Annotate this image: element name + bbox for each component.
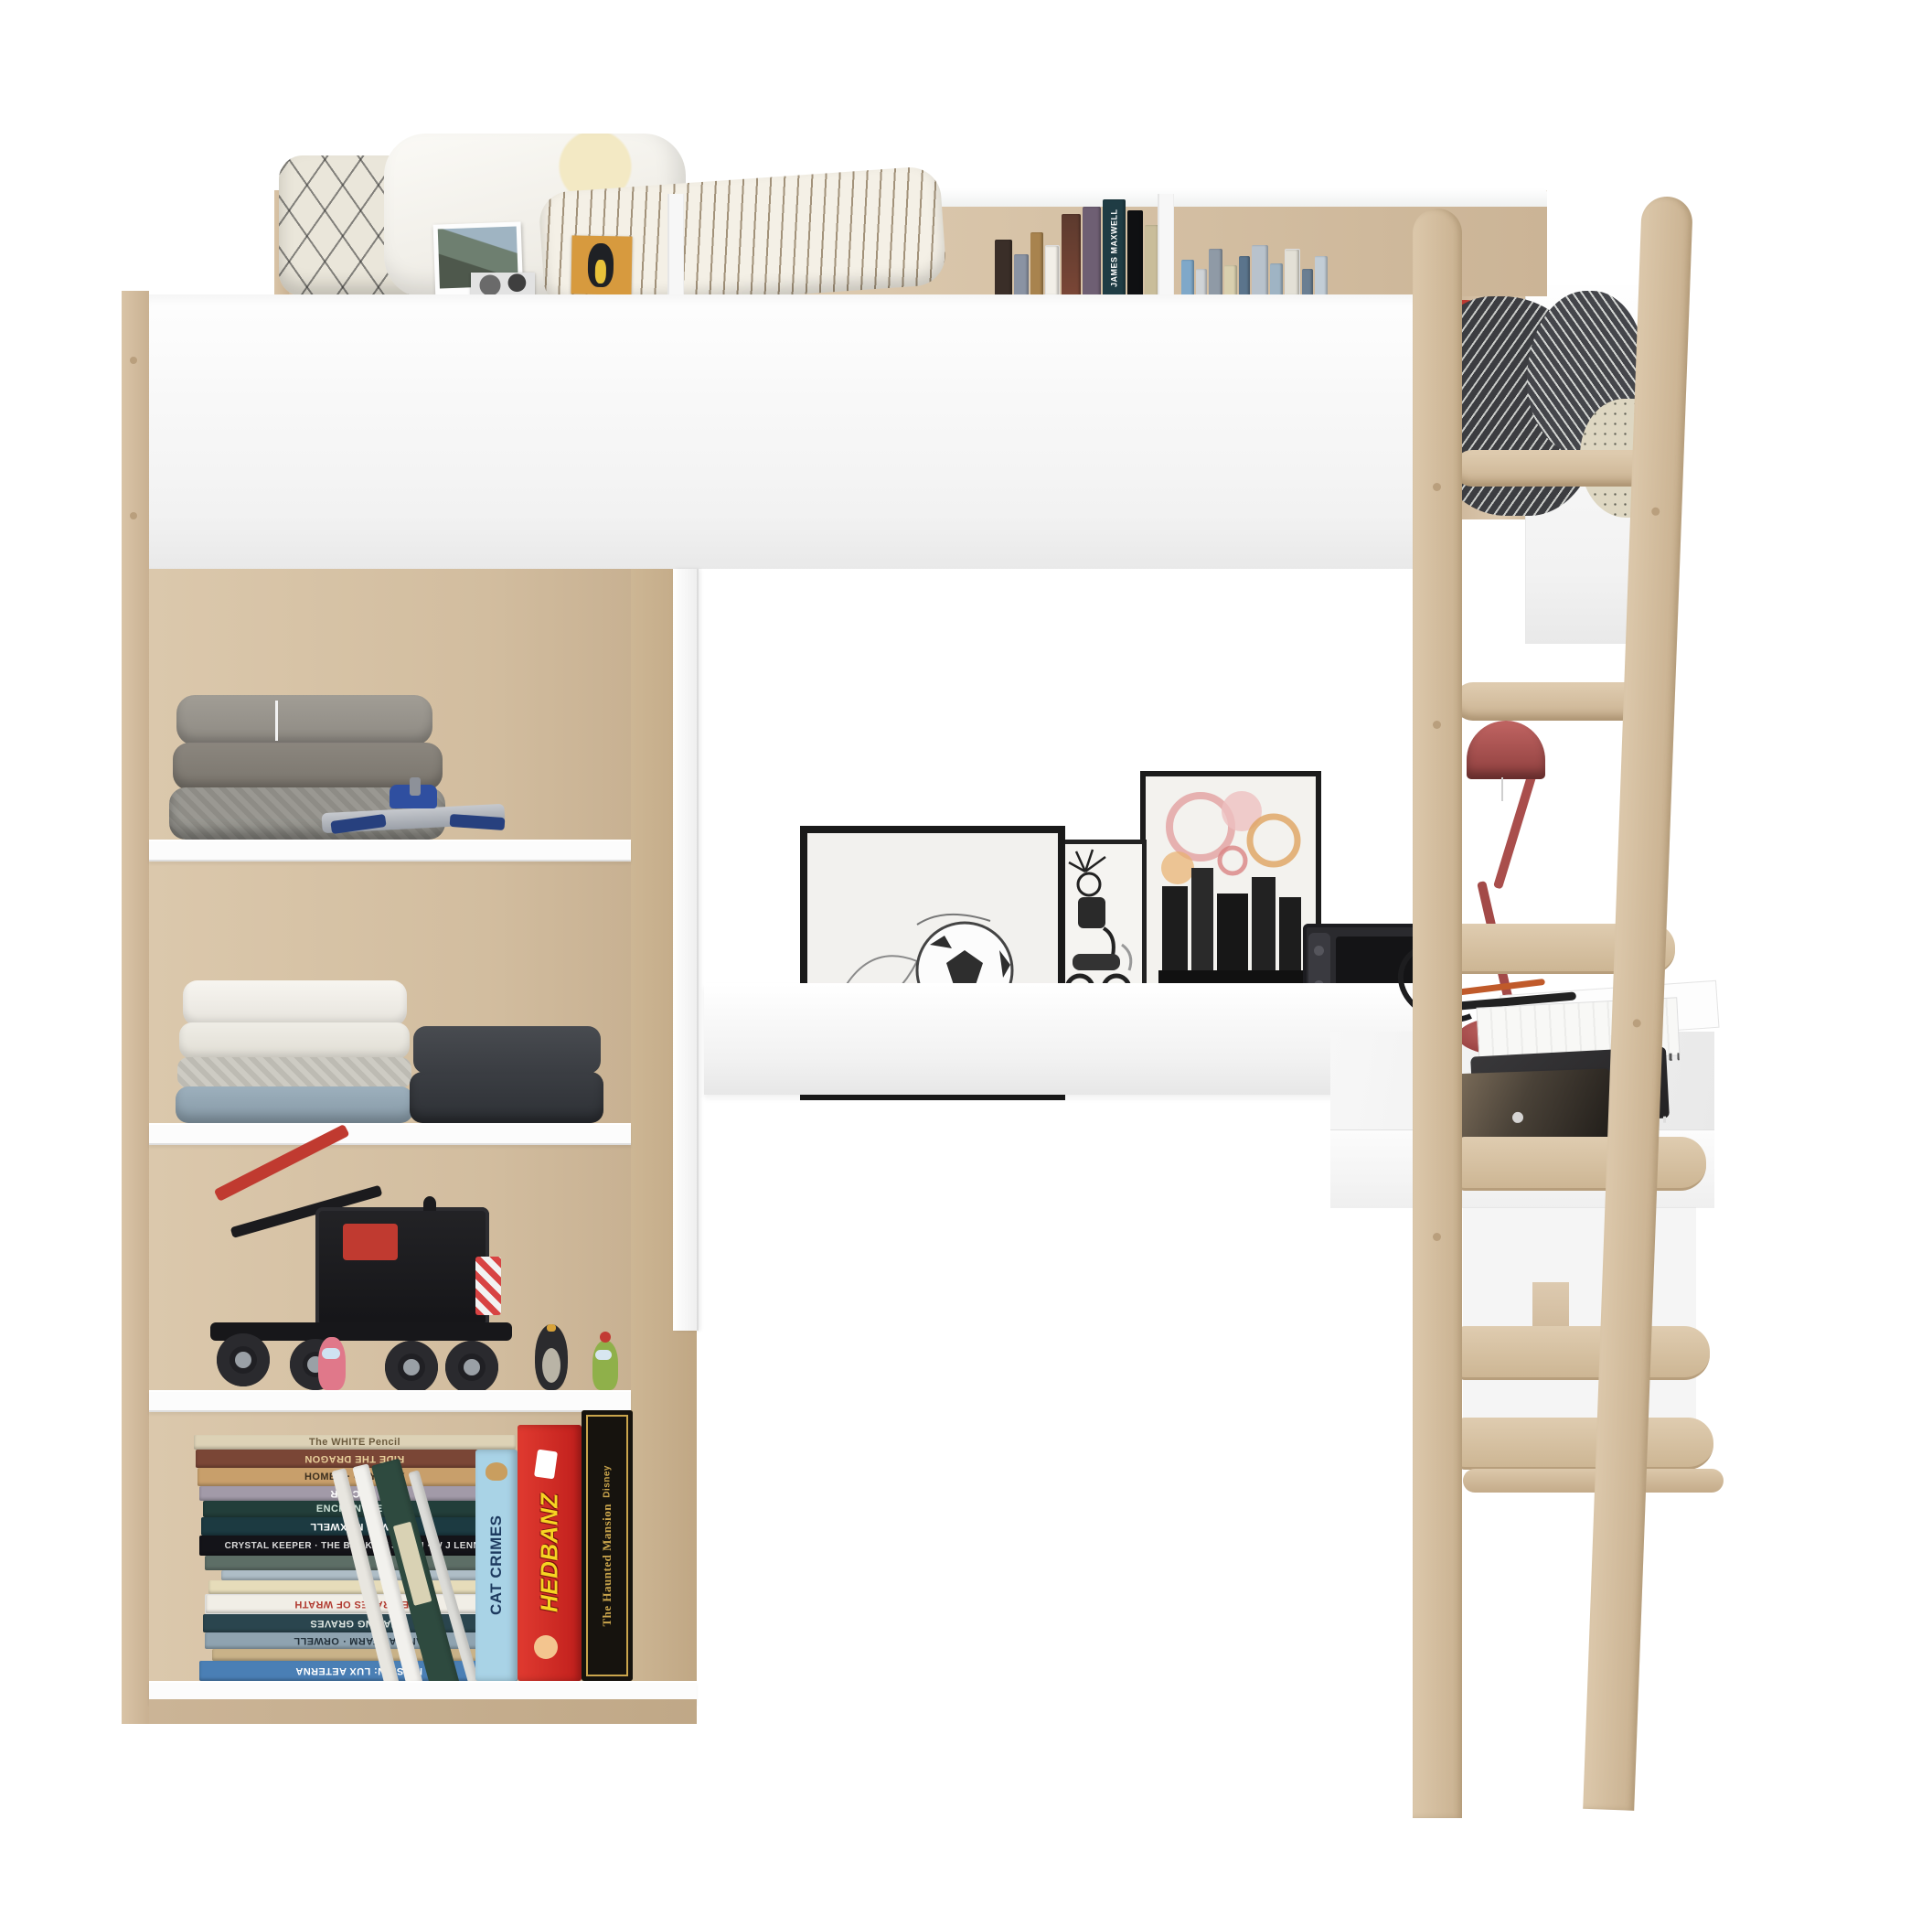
lamp-pull-chain [1501,777,1503,801]
book-spine [1196,269,1207,296]
desk-lamp-head [1467,721,1545,779]
book-spine [1062,214,1081,296]
stacked-book [208,1580,503,1594]
top-shelf-books-left: JAMES MAXWELL [995,196,1159,296]
ladder-dowel [1463,1469,1724,1493]
stacked-book: RIDE THE DRAGON [196,1450,514,1468]
pink-figurine [318,1337,346,1390]
ladder-tread [1457,1137,1706,1191]
stacked-book: The WHITE Pencil [194,1435,516,1450]
ladder-left-stile [1413,209,1462,1818]
lego-spaceship [322,777,514,840]
book-spine [1302,269,1313,296]
card-icon [534,1450,558,1480]
wardrobe-shelf [149,1390,631,1412]
folded-linens-dark [410,1026,606,1123]
book-spine [1239,256,1250,296]
haunted-mansion-brand: Disney [600,1465,614,1498]
wardrobe-base-shadow [149,1699,697,1724]
book-spine [1045,245,1061,296]
penguin-figurine [535,1324,568,1390]
bird-art-card [571,235,632,294]
ladder-tread [1457,1326,1710,1380]
cat-crimes-title: CAT CRIMES [475,1450,518,1681]
folded-linens-light [176,980,415,1123]
book-spine [1030,232,1043,296]
ladder-rung [1454,450,1657,487]
stacked-book: CHASING GRAVES [203,1614,514,1632]
wardrobe-shelf [149,840,631,862]
loft-bed-product-photo: JAMES MAXWELL [0,0,1932,1905]
haunted-mansion-title: The Haunted Mansion [600,1504,614,1626]
book-spine [1014,254,1029,296]
hedbanz-box: HEDBANZ [518,1425,582,1681]
top-shelf-books-right [1181,229,1328,296]
wardrobe-door-edge [673,569,699,1331]
face-icon [534,1635,558,1659]
cat-icon [486,1462,507,1481]
stacked-book: THE GRAPES OF WRATH [205,1594,512,1614]
ladder-tread [1457,1418,1713,1470]
book-spine-james-maxwell: JAMES MAXWELL [1103,199,1126,296]
desk-side-panel [1463,1207,1696,1437]
bed-front-panel [144,294,1457,569]
desk-lamp-arm-upper [1493,771,1537,889]
green-figurine [592,1341,618,1390]
wardrobe-shelf [149,1123,631,1145]
book-spine [1252,245,1268,296]
laptop-logo-icon [1512,1112,1523,1123]
wardrobe-left-side [122,291,149,1724]
headboard-divider [1158,194,1174,296]
headboard-divider [667,194,684,296]
book-spine [1270,263,1283,296]
book-spine [1209,249,1223,296]
book-spine [1285,249,1301,296]
desk-wood-stub [1532,1282,1569,1328]
book-title: JAMES MAXWELL [1103,199,1126,296]
book-spine [1083,207,1100,296]
book-spine [1127,210,1143,296]
desk-back-rail [704,983,1426,1095]
book-spine [1181,260,1194,296]
book-spine [1224,265,1237,296]
book-spine [995,240,1012,296]
haunted-mansion-box: Disney The Haunted Mansion [582,1410,633,1681]
cat-crimes-box: CAT CRIMES [475,1450,518,1681]
book-spine [1315,256,1328,296]
lego-truck [206,1169,521,1390]
